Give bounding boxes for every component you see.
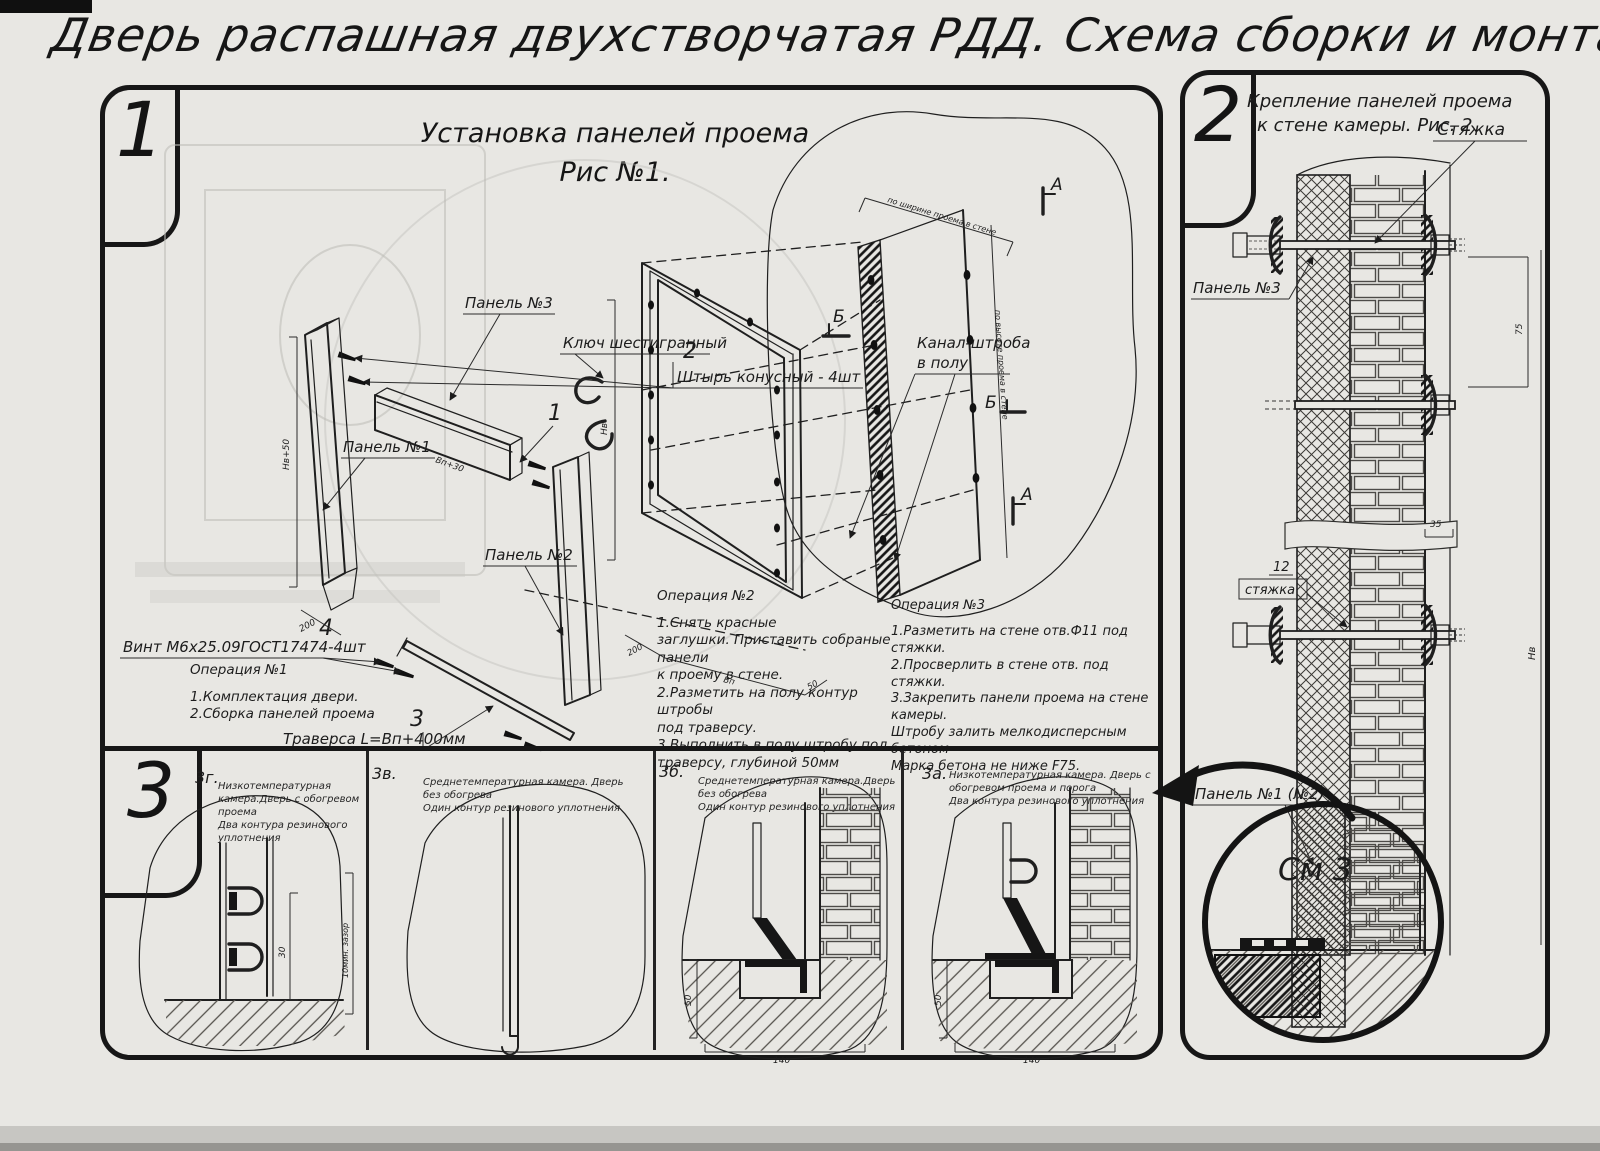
drawing-sheet: Дверь распашная двухстворчатая РДД. Схем…: [0, 0, 1600, 1151]
see3-overlay: См 3: [0, 0, 1600, 1151]
see3-label: См 3: [1278, 852, 1353, 888]
see3-arrowhead: [1152, 765, 1199, 806]
